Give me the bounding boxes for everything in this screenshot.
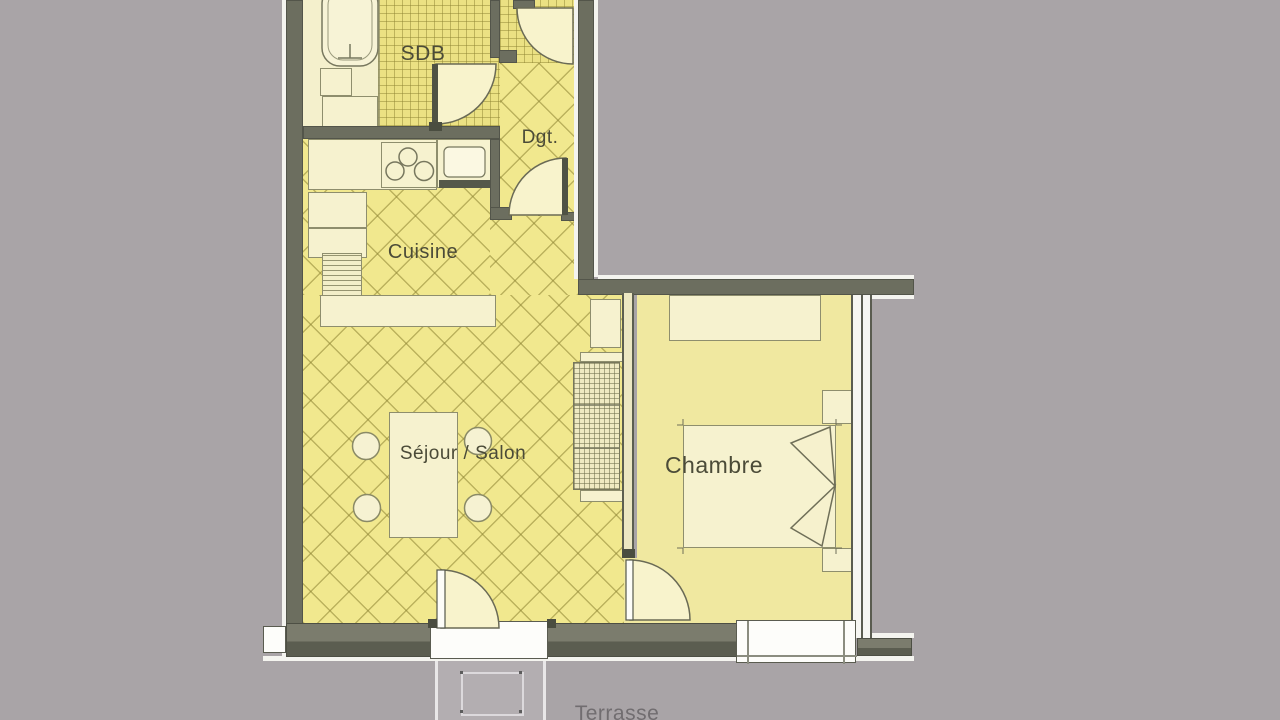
- hallway-door-swing: [509, 158, 566, 215]
- chair: [354, 495, 381, 522]
- terrace-door-leaf: [437, 570, 445, 628]
- terrace-table-corner-dots: [460, 671, 522, 713]
- bathroom-door-stop: [429, 122, 442, 131]
- duvet-fold-upper: [791, 427, 835, 486]
- shelving-section-lines: [573, 405, 620, 448]
- plan-linework: [0, 0, 1280, 720]
- terrace-door-stop-left: [428, 619, 437, 628]
- floor-plan-canvas: SDB Dgt. Cuisine Séjour / Salon Chambre …: [0, 0, 1280, 720]
- duvet-fold-lower: [791, 486, 835, 546]
- label-bedroom: Chambre: [665, 452, 763, 479]
- stove-burner: [386, 162, 404, 180]
- bedroom-door-stop: [622, 549, 635, 558]
- terrace-door-stop-right: [547, 619, 556, 628]
- label-kitchen: Cuisine: [388, 241, 458, 264]
- bathroom-door-leaf: [432, 64, 438, 124]
- chair: [465, 495, 492, 522]
- bedroom-door-swing: [630, 560, 690, 620]
- entrance-door-swing: [517, 8, 573, 64]
- label-bathroom: SDB: [401, 42, 446, 66]
- label-hallway: Dgt.: [522, 127, 559, 149]
- chair: [353, 433, 380, 460]
- label-terrace: Terrasse: [575, 702, 660, 720]
- sink-basin: [444, 147, 485, 177]
- bathroom-door-swing: [436, 64, 496, 124]
- label-living-room: Séjour / Salon: [400, 443, 526, 465]
- terrace-door-swing: [441, 570, 499, 628]
- stove-burner: [399, 148, 417, 166]
- bedroom-door-leaf: [626, 560, 633, 620]
- hallway-door-leaf: [562, 158, 568, 215]
- stove-burner: [415, 162, 434, 181]
